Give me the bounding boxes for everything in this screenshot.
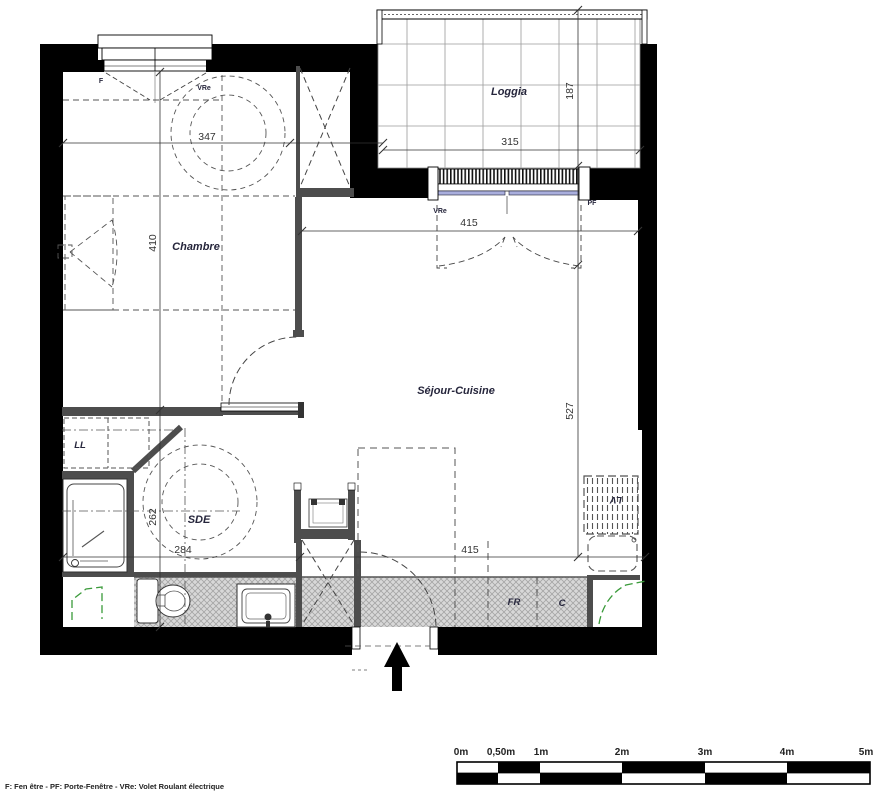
opening-label-pf: PF [588, 200, 598, 207]
turning-circle [171, 76, 285, 190]
dim-sejour-width: 415 [460, 217, 478, 229]
scale-label-0m: 0m [454, 747, 469, 758]
chambre-door-swing [229, 337, 297, 405]
legend-text: F: Fen être - PF: Porte-Fenêtre - VRe: V… [5, 782, 224, 791]
appliance-label-ll: LL [74, 440, 86, 451]
scale-label-5m: 5m [859, 747, 874, 758]
scale-label-3m: 3m [698, 747, 713, 758]
opening-label-vre-chambre: VRe [197, 85, 211, 92]
opening-label-f: F [99, 78, 104, 85]
scale-label-1m: 1m [534, 747, 549, 758]
floor-plan-page: Chambre Loggia Séjour-Cuisine SDE LL FR … [0, 0, 887, 800]
appliance-label-c: C [559, 598, 566, 609]
room-label-loggia: Loggia [491, 86, 527, 98]
opening-label-vre-sejour: VRe [433, 208, 447, 215]
shower [63, 479, 127, 572]
room-label-sde: SDE [188, 514, 211, 526]
dim-loggia-width: 315 [501, 136, 519, 148]
niche-caps [294, 483, 355, 490]
dim-kitchen-width: 415 [461, 544, 479, 556]
dim-sde-height: 262 [147, 508, 159, 526]
scale-bar-segments [457, 762, 870, 784]
sde-sliding-door [221, 402, 304, 418]
appliance-label-fr: FR [508, 597, 521, 608]
rolling-shutter-band [438, 169, 579, 184]
chambre-closet [300, 68, 350, 187]
porte-fenetre [428, 167, 590, 268]
room-label-chambre: Chambre [172, 241, 220, 253]
chambre-furniture [58, 75, 295, 405]
duct-right [599, 581, 646, 624]
hatched-floor [134, 577, 590, 627]
vanity-basin [237, 584, 295, 627]
chambre-window [98, 35, 212, 103]
glazing-right [509, 191, 579, 195]
glazing-left [438, 191, 505, 195]
room-label-sejour: Séjour-Cuisine [417, 385, 495, 397]
dim-sde-width: 284 [174, 544, 192, 556]
scale-label-2m: 2m [615, 747, 630, 758]
scale-bar: 0m 0,50m 1m 2m 3m 4m 5m [454, 747, 874, 784]
scale-label-4m: 4m [780, 747, 795, 758]
scale-label-050m: 0,50m [487, 747, 515, 758]
dim-chambre-width: 347 [198, 131, 216, 143]
pf-swing-dashes [437, 205, 581, 268]
sde-fixtures [62, 418, 295, 627]
dim-chambre-height: 410 [147, 234, 159, 252]
dim-loggia-depth: 187 [564, 82, 576, 100]
floor-plan-drawing: Chambre Loggia Séjour-Cuisine SDE LL FR … [0, 0, 887, 800]
duct-left [72, 587, 102, 620]
dim-sejour-height: 527 [564, 402, 576, 420]
entrance-arrow-icon [384, 642, 410, 691]
appliance-label-lv: LV [610, 494, 622, 505]
window-swing-lines [106, 73, 206, 100]
